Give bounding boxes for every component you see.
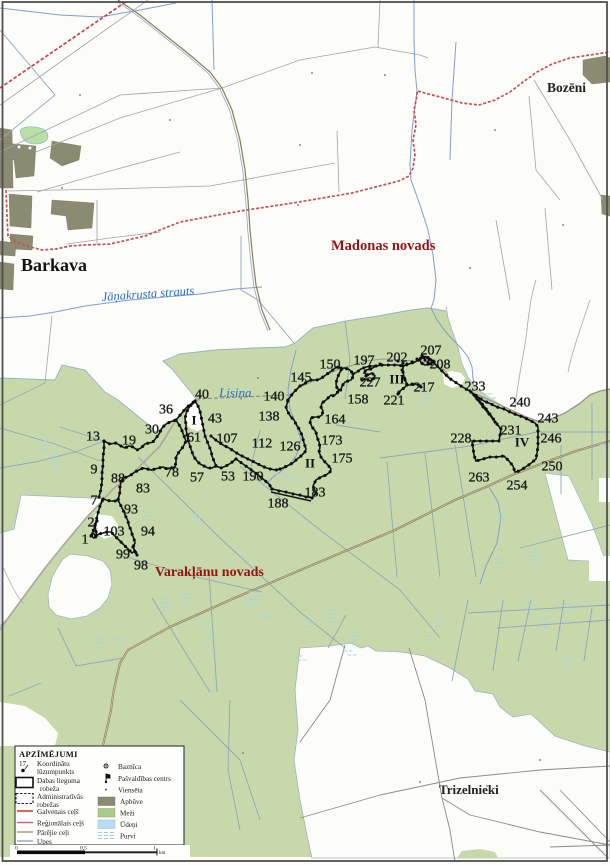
svg-text:Varakļānu novads: Varakļānu novads <box>155 565 264 580</box>
svg-text:19: 19 <box>122 434 136 449</box>
svg-text:Pārējie ceļi: Pārējie ceļi <box>37 829 69 838</box>
svg-text:61: 61 <box>187 431 201 446</box>
svg-text:250: 250 <box>542 460 563 475</box>
svg-text:Purvi: Purvi <box>120 833 136 841</box>
svg-text:7: 7 <box>91 494 98 509</box>
svg-text:183: 183 <box>305 486 326 501</box>
svg-text:9: 9 <box>91 463 98 478</box>
svg-text:km: km <box>159 851 166 856</box>
svg-text:164: 164 <box>325 413 346 428</box>
svg-text:Meži: Meži <box>120 810 135 818</box>
svg-text:1: 1 <box>82 533 89 548</box>
svg-text:208: 208 <box>430 358 451 373</box>
svg-text:lūzumpunkts: lūzumpunkts <box>37 768 74 776</box>
svg-text:13: 13 <box>86 430 100 445</box>
svg-text:Koordinātu: Koordinātu <box>37 760 70 768</box>
svg-text:233: 233 <box>465 380 486 395</box>
svg-text:190: 190 <box>243 470 264 485</box>
svg-text:Baznīca: Baznīca <box>118 763 142 771</box>
svg-text:263: 263 <box>469 471 490 486</box>
svg-text:207: 207 <box>421 344 442 359</box>
svg-text:243: 243 <box>538 412 559 427</box>
svg-text:40: 40 <box>195 388 209 403</box>
svg-text:57: 57 <box>190 471 204 486</box>
svg-text:43: 43 <box>208 412 222 427</box>
svg-text:246: 246 <box>541 432 562 447</box>
svg-text:17: 17 <box>19 760 27 768</box>
svg-text:APZĪMĒJUMI: APZĪMĒJUMI <box>19 749 78 759</box>
svg-text:88: 88 <box>111 472 125 487</box>
svg-text:98: 98 <box>134 559 148 574</box>
svg-text:Lisiņa: Lisiņa <box>218 385 252 400</box>
svg-text:0: 0 <box>15 846 18 852</box>
svg-text:103: 103 <box>104 525 125 540</box>
svg-text:227: 227 <box>360 376 381 391</box>
svg-text:robeža: robeža <box>40 785 60 793</box>
svg-text:228: 228 <box>451 432 472 447</box>
svg-text:197: 197 <box>354 354 375 369</box>
svg-text:93: 93 <box>124 503 138 518</box>
svg-text:202: 202 <box>387 351 408 366</box>
svg-text:Barkava: Barkava <box>21 255 87 275</box>
svg-text:78: 78 <box>165 466 179 481</box>
svg-text:Galvenais ceļš: Galvenais ceļš <box>37 808 79 817</box>
svg-text:30: 30 <box>145 423 159 438</box>
svg-text:Ūdeņi: Ūdeņi <box>120 820 138 830</box>
svg-text:145: 145 <box>291 371 312 386</box>
svg-text:150: 150 <box>320 358 341 373</box>
svg-text:Madonas novads: Madonas novads <box>331 238 436 254</box>
svg-text:0,5: 0,5 <box>80 846 87 852</box>
svg-text:240: 240 <box>510 396 531 411</box>
svg-text:107: 107 <box>217 432 238 447</box>
svg-text:138: 138 <box>259 410 280 425</box>
svg-text:254: 254 <box>507 479 528 494</box>
svg-text:112: 112 <box>252 437 272 452</box>
svg-text:Dabas lieguma: Dabas lieguma <box>37 777 81 785</box>
svg-text:Reģionālais ceļš: Reģionālais ceļš <box>37 819 84 829</box>
svg-text:126: 126 <box>280 440 301 455</box>
svg-text:2: 2 <box>88 516 95 531</box>
svg-text:217: 217 <box>414 381 435 396</box>
svg-text:94: 94 <box>141 525 155 540</box>
svg-text:Apbūve: Apbūve <box>120 798 143 806</box>
svg-text:1: 1 <box>153 846 156 852</box>
svg-text:III: III <box>389 372 404 387</box>
svg-text:I: I <box>191 413 196 428</box>
svg-text:II: II <box>305 456 315 471</box>
svg-text:Pašvaldības centrs: Pašvaldības centrs <box>118 775 171 783</box>
svg-text:175: 175 <box>332 452 353 467</box>
svg-text:Trizelnieki: Trizelnieki <box>439 782 499 797</box>
svg-text:36: 36 <box>159 403 173 418</box>
svg-text:140: 140 <box>264 390 285 405</box>
svg-text:83: 83 <box>136 482 150 497</box>
svg-text:Upes: Upes <box>37 838 52 846</box>
svg-text:Bozēni: Bozēni <box>547 80 586 95</box>
svg-text:53: 53 <box>221 470 235 485</box>
svg-text:221: 221 <box>384 394 405 409</box>
svg-text:Viensēta: Viensēta <box>118 787 144 795</box>
svg-text:173: 173 <box>322 434 343 449</box>
svg-text:99: 99 <box>116 548 130 563</box>
svg-text:158: 158 <box>348 393 369 408</box>
svg-text:Administratīvās: Administratīvās <box>37 793 83 801</box>
svg-text:IV: IV <box>515 435 530 450</box>
svg-text:188: 188 <box>268 497 289 512</box>
